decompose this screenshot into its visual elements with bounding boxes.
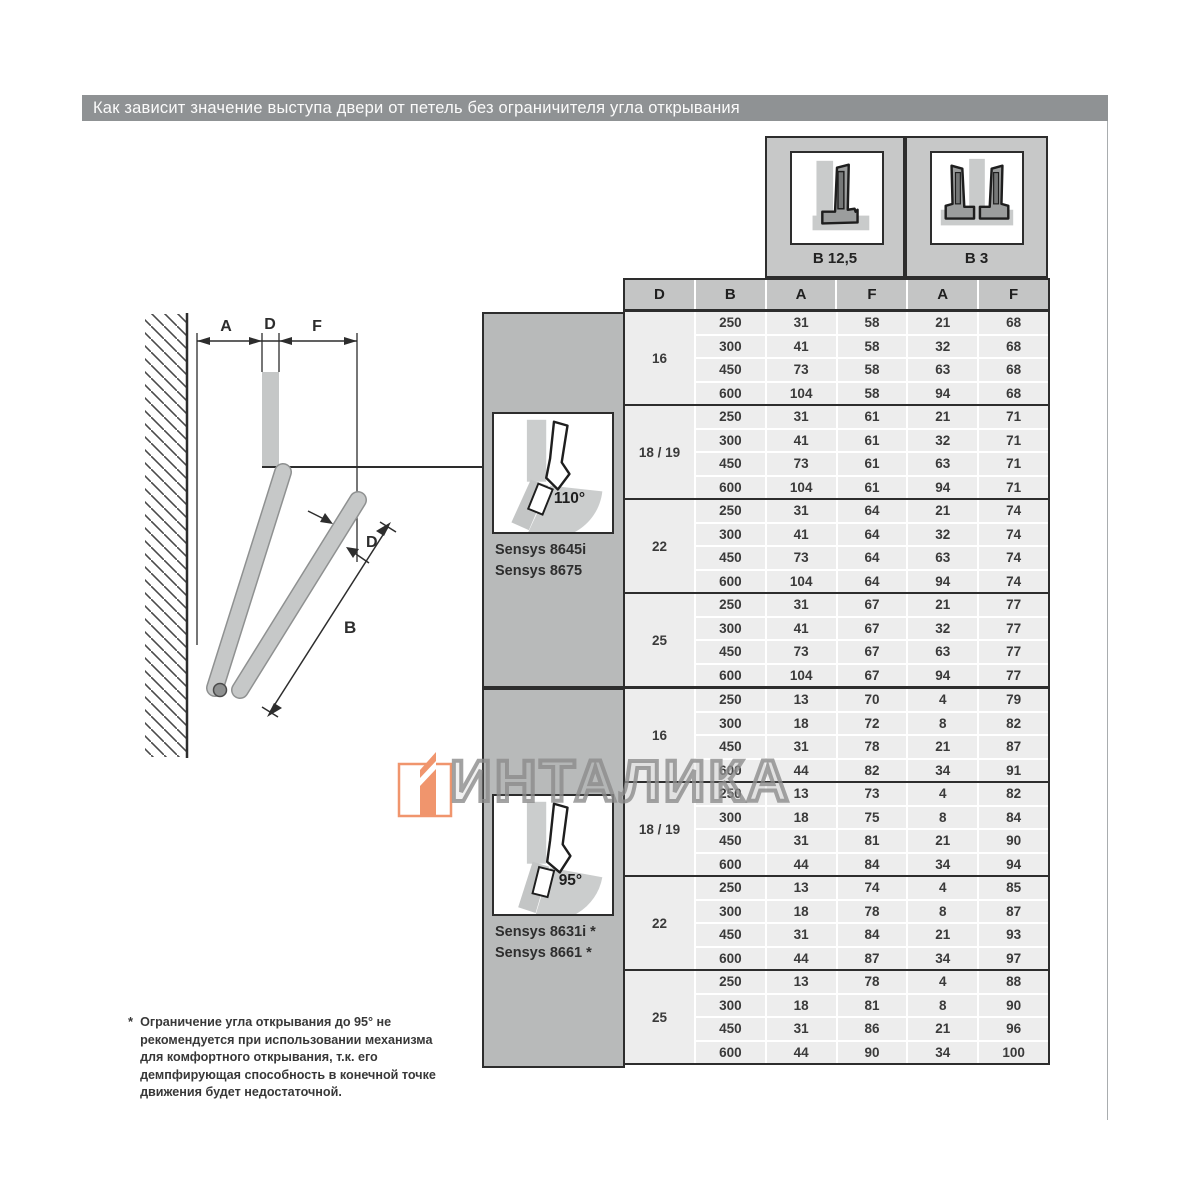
table-cell: 78 (836, 971, 907, 993)
table-cell: 86 (836, 1018, 907, 1040)
table-group: 2525013784883001881890450318621966004490… (625, 969, 1048, 1063)
footnote-marker: * (128, 1014, 133, 1102)
table-cell: 67 (836, 641, 907, 663)
table-cell: 104 (765, 571, 836, 593)
table-cell: 64 (836, 571, 907, 593)
table-cell: 68 (977, 383, 1048, 405)
table-row: 25031642174 (696, 500, 1048, 522)
table-cell: 104 (765, 477, 836, 499)
table-cell: 8 (906, 995, 977, 1017)
table-row: 3001872882 (696, 711, 1048, 735)
opening-angle-label: 110° (554, 490, 585, 507)
table-cell: 74 (977, 500, 1048, 522)
table-row: 30041673277 (696, 616, 1048, 640)
table-group: 1625013704793001872882450317821876004482… (625, 689, 1048, 781)
table-cell: 79 (977, 689, 1048, 711)
table-row: 600104619471 (696, 475, 1048, 499)
table-row: 30041613271 (696, 428, 1048, 452)
table-cell: 8 (906, 807, 977, 829)
table-cell: 600 (696, 665, 765, 687)
table-row: 3001878887 (696, 899, 1048, 923)
table-cell: 94 (977, 854, 1048, 876)
hinge-pivot (214, 684, 227, 697)
table-cell: 68 (977, 359, 1048, 381)
table-cell: 71 (977, 453, 1048, 475)
table-cell: 64 (836, 524, 907, 546)
table-row: 25031582168 (696, 312, 1048, 334)
table-cell: 94 (906, 383, 977, 405)
open-door-position-1 (215, 472, 283, 688)
table-cell: 450 (696, 736, 765, 758)
table-cell: 58 (836, 359, 907, 381)
table-cell: 31 (765, 1018, 836, 1040)
table-row: 600104589468 (696, 381, 1048, 405)
table-row: 600104679477 (696, 663, 1048, 687)
table-group: 2225013744853001878887450318421936004487… (625, 875, 1048, 969)
table-row: 45031842193 (696, 922, 1048, 946)
table-cell: 250 (696, 312, 765, 334)
table-cell: 250 (696, 877, 765, 899)
table-cell: 104 (765, 383, 836, 405)
table-cell: 96 (977, 1018, 1048, 1040)
table-cell: 88 (977, 971, 1048, 993)
table-cell: 94 (906, 477, 977, 499)
depth-cell: 16 (625, 312, 696, 404)
table-cell: 21 (906, 924, 977, 946)
table-cell: 600 (696, 854, 765, 876)
depth-cell: 22 (625, 500, 696, 592)
table-row: 2501378488 (696, 971, 1048, 993)
table-cell: 61 (836, 430, 907, 452)
table-cell: 63 (906, 359, 977, 381)
table-group: 1625031582168300415832684507358636860010… (625, 312, 1048, 404)
table-cell: 94 (906, 665, 977, 687)
mount-type-box-twin: B 3 (905, 136, 1048, 278)
table-cell: 73 (836, 783, 907, 805)
table-cell: 21 (906, 594, 977, 616)
table-cell: 31 (765, 594, 836, 616)
table-row: 45073586368 (696, 357, 1048, 381)
table-group: 18 / 19250316121713004161327145073616371… (625, 404, 1048, 498)
table-cell: 73 (765, 547, 836, 569)
table-cell: 91 (977, 760, 1048, 782)
table-cell: 61 (836, 453, 907, 475)
dim-label-f: F (312, 318, 322, 335)
hinge-model: Sensys 8631i * (495, 922, 596, 943)
table-cell: 63 (906, 453, 977, 475)
table-cell: 78 (836, 901, 907, 923)
table-cell: 34 (906, 854, 977, 876)
table-cell: 21 (906, 312, 977, 334)
table-cell: 31 (765, 830, 836, 852)
table-row: 25031672177 (696, 594, 1048, 616)
table-cell: 64 (836, 547, 907, 569)
table-cell: 70 (836, 689, 907, 711)
depth-cell: 22 (625, 877, 696, 969)
table-cell: 41 (765, 430, 836, 452)
table-cell: 61 (836, 406, 907, 428)
table-cell: 18 (765, 995, 836, 1017)
table-row: 45073646374 (696, 545, 1048, 569)
table-cell: 63 (906, 641, 977, 663)
table-cell: 34 (906, 760, 977, 782)
table-cell: 300 (696, 901, 765, 923)
table-cell: 450 (696, 830, 765, 852)
table-group: 2225031642174300416432744507364637460010… (625, 498, 1048, 592)
table-row: 30041643274 (696, 522, 1048, 546)
column-header-f1: F (835, 280, 906, 309)
table-cell: 44 (765, 1042, 836, 1064)
table-cell: 21 (906, 500, 977, 522)
dim-label-d-top: D (264, 316, 276, 333)
column-header-d: D (625, 280, 694, 309)
table-cell: 600 (696, 948, 765, 970)
table-cell: 75 (836, 807, 907, 829)
dim-label-d-side: D (366, 534, 378, 551)
table-cell: 31 (765, 924, 836, 946)
table-cell: 87 (836, 948, 907, 970)
table-cell: 58 (836, 383, 907, 405)
table-cell: 4 (906, 783, 977, 805)
table-row: 45031782187 (696, 734, 1048, 758)
table-cell: 64 (836, 500, 907, 522)
table-row: 60044873497 (696, 946, 1048, 970)
table-cell: 13 (765, 689, 836, 711)
table-cell: 68 (977, 312, 1048, 334)
table-cell: 300 (696, 524, 765, 546)
table-row: 60044823491 (696, 758, 1048, 782)
table-cell: 600 (696, 571, 765, 593)
table-row: 60044843494 (696, 852, 1048, 876)
table-cell: 34 (906, 1042, 977, 1064)
mount-type-label: B 3 (907, 250, 1046, 267)
table-cell: 4 (906, 877, 977, 899)
table-cell: 58 (836, 336, 907, 358)
table-cell: 31 (765, 406, 836, 428)
hinge-models: Sensys 8631i * Sensys 8661 * (495, 922, 596, 964)
table-cell: 71 (977, 406, 1048, 428)
document-page: Как зависит значение выступа двери от пе… (0, 0, 1200, 1200)
table-cell: 4 (906, 689, 977, 711)
dim-label-a: A (220, 318, 232, 335)
table-cell: 4 (906, 971, 977, 993)
dim-label-b: B (344, 618, 356, 637)
table-cell: 32 (906, 524, 977, 546)
table-cell: 90 (977, 995, 1048, 1017)
table-cell: 73 (765, 641, 836, 663)
column-header-a2: A (906, 280, 977, 309)
page-title: Как зависит значение выступа двери от пе… (82, 95, 1108, 121)
page-border (1107, 121, 1108, 1120)
table-cell: 450 (696, 924, 765, 946)
table-row: 45031812190 (696, 828, 1048, 852)
table-cell: 77 (977, 618, 1048, 640)
table-cell: 44 (765, 760, 836, 782)
table-cell: 78 (836, 736, 907, 758)
table-group: 18 / 19250137348230018758844503181219060… (625, 781, 1048, 875)
table-cell: 600 (696, 477, 765, 499)
table-cell: 21 (906, 406, 977, 428)
table-cell: 600 (696, 760, 765, 782)
table-cell: 250 (696, 406, 765, 428)
table-row: 3001881890 (696, 993, 1048, 1017)
depth-cell: 25 (625, 594, 696, 686)
table-cell: 13 (765, 877, 836, 899)
table-cell: 44 (765, 948, 836, 970)
depth-cell: 18 / 19 (625, 406, 696, 498)
table-cell: 21 (906, 1018, 977, 1040)
depth-cell: 18 / 19 (625, 783, 696, 875)
table-cell: 450 (696, 1018, 765, 1040)
table-cell: 72 (836, 713, 907, 735)
table-cell: 87 (977, 901, 1048, 923)
table-cell: 71 (977, 477, 1048, 499)
closed-door (262, 372, 279, 467)
table-cell: 34 (906, 948, 977, 970)
table-cell: 18 (765, 713, 836, 735)
table-cell: 13 (765, 971, 836, 993)
table-cell: 67 (836, 665, 907, 687)
table-cell: 74 (977, 547, 1048, 569)
table-cell: 104 (765, 665, 836, 687)
table-cell: 74 (977, 524, 1048, 546)
table-row: 45031862196 (696, 1016, 1048, 1040)
table-header: D B A F A F (623, 278, 1050, 312)
table-cell: 450 (696, 453, 765, 475)
hinge-model: Sensys 8675 (495, 561, 586, 582)
table-section: 1625013704793001872882450317821876004482… (625, 686, 1048, 1063)
table-cell: 31 (765, 736, 836, 758)
table-cell: 32 (906, 618, 977, 640)
table-cell: 81 (836, 995, 907, 1017)
table-cell: 82 (836, 760, 907, 782)
table-cell: 63 (906, 547, 977, 569)
table-cell: 67 (836, 594, 907, 616)
table-cell: 32 (906, 336, 977, 358)
table-cell: 41 (765, 524, 836, 546)
table-cell: 450 (696, 641, 765, 663)
table-section: 1625031582168300415832684507358636860010… (625, 312, 1048, 686)
table-cell: 61 (836, 477, 907, 499)
table-cell: 250 (696, 689, 765, 711)
column-header-b: B (694, 280, 765, 309)
table-row: 2501374485 (696, 877, 1048, 899)
table-cell: 250 (696, 971, 765, 993)
table-cell: 84 (977, 807, 1048, 829)
table-group: 2525031672177300416732774507367637760010… (625, 592, 1048, 686)
table-cell: 94 (906, 571, 977, 593)
table-row: 45073676377 (696, 639, 1048, 663)
table-cell: 300 (696, 430, 765, 452)
table-cell: 300 (696, 618, 765, 640)
hinge-open-110-icon: 110° (492, 412, 614, 534)
table-cell: 44 (765, 854, 836, 876)
hinge-overlay-icon (790, 151, 884, 245)
table-row: 30041583268 (696, 334, 1048, 358)
table-cell: 8 (906, 713, 977, 735)
depth-cell: 25 (625, 971, 696, 1063)
hinge-open-95-icon: 95° (492, 794, 614, 916)
table-cell: 32 (906, 430, 977, 452)
page-title-text: Как зависит значение выступа двери от пе… (93, 99, 740, 118)
table-cell: 77 (977, 594, 1048, 616)
mount-type-label: B 12,5 (767, 250, 903, 267)
footnote-text: Ограничение угла открывания до 95° не ре… (140, 1014, 436, 1102)
table-cell: 68 (977, 336, 1048, 358)
table-row: 2501370479 (696, 689, 1048, 711)
column-header-f2: F (977, 280, 1048, 309)
table-row: 2501373482 (696, 783, 1048, 805)
table-cell: 93 (977, 924, 1048, 946)
table-row: 25031612171 (696, 406, 1048, 428)
table-cell: 67 (836, 618, 907, 640)
table-cell: 84 (836, 854, 907, 876)
hinge-twin-icon (930, 151, 1024, 245)
depth-cell: 16 (625, 689, 696, 781)
table-cell: 13 (765, 783, 836, 805)
hinge-models: Sensys 8645i Sensys 8675 (495, 540, 586, 582)
table-cell: 85 (977, 877, 1048, 899)
wall-hatching (145, 314, 187, 757)
table-cell: 90 (836, 1042, 907, 1064)
table-cell: 21 (906, 830, 977, 852)
table-cell: 250 (696, 500, 765, 522)
table-cell: 41 (765, 618, 836, 640)
table-cell: 300 (696, 336, 765, 358)
hinge-model: Sensys 8661 * (495, 943, 596, 964)
table-cell: 73 (765, 453, 836, 475)
column-header-a1: A (765, 280, 836, 309)
table-cell: 77 (977, 641, 1048, 663)
table-cell: 250 (696, 594, 765, 616)
table-cell: 18 (765, 807, 836, 829)
table-cell: 8 (906, 901, 977, 923)
table-cell: 300 (696, 713, 765, 735)
hinge-panel-95: 95° Sensys 8631i * Sensys 8661 * (482, 688, 625, 1068)
table-cell: 41 (765, 336, 836, 358)
door-protrusion-table: D B A F A F 1625031582168300415832684507… (623, 278, 1050, 1065)
table-cell: 74 (977, 571, 1048, 593)
table-cell: 100 (977, 1042, 1048, 1064)
table-cell: 73 (765, 359, 836, 381)
table-cell: 81 (836, 830, 907, 852)
table-cell: 600 (696, 1042, 765, 1064)
mount-type-box-overlay: B 12,5 (765, 136, 905, 278)
table-cell: 90 (977, 830, 1048, 852)
table-body: 1625031582168300415832684507358636860010… (623, 312, 1050, 1065)
table-row: 600104649474 (696, 569, 1048, 593)
table-cell: 21 (906, 736, 977, 758)
table-cell: 250 (696, 783, 765, 805)
table-cell: 600 (696, 383, 765, 405)
table-cell: 300 (696, 995, 765, 1017)
table-cell: 71 (977, 430, 1048, 452)
table-cell: 82 (977, 783, 1048, 805)
table-cell: 31 (765, 312, 836, 334)
table-cell: 450 (696, 359, 765, 381)
table-cell: 18 (765, 901, 836, 923)
hinge-model: Sensys 8645i (495, 540, 586, 561)
table-row: 600449034100 (696, 1040, 1048, 1064)
table-cell: 450 (696, 547, 765, 569)
table-cell: 82 (977, 713, 1048, 735)
table-row: 3001875884 (696, 805, 1048, 829)
hinge-panel-110: 110° Sensys 8645i Sensys 8675 (482, 312, 625, 688)
table-row: 45073616371 (696, 451, 1048, 475)
table-cell: 31 (765, 500, 836, 522)
table-cell: 58 (836, 312, 907, 334)
opening-angle-label: 95° (559, 872, 582, 889)
table-cell: 74 (836, 877, 907, 899)
table-cell: 77 (977, 665, 1048, 687)
table-cell: 84 (836, 924, 907, 946)
table-cell: 97 (977, 948, 1048, 970)
table-cell: 300 (696, 807, 765, 829)
footnote: * Ограничение угла открывания до 95° не … (128, 1014, 448, 1102)
table-cell: 87 (977, 736, 1048, 758)
